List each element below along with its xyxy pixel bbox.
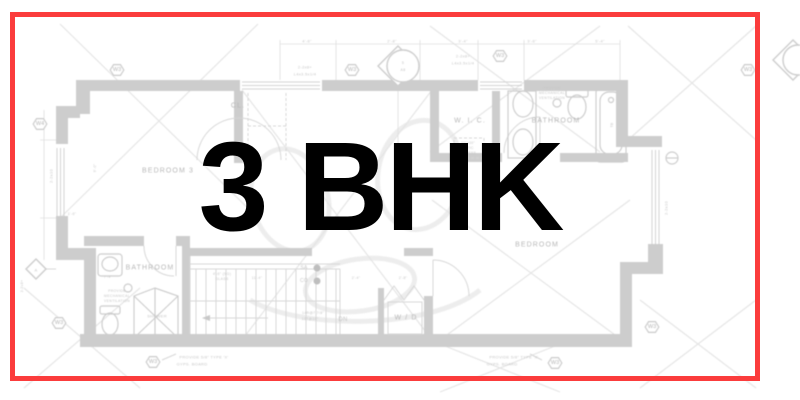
- screenshot-root: BEDROOM 3W. I. C.BATHROOMBATHROOMBEDROOM…: [0, 0, 800, 400]
- red-frame: [10, 12, 760, 381]
